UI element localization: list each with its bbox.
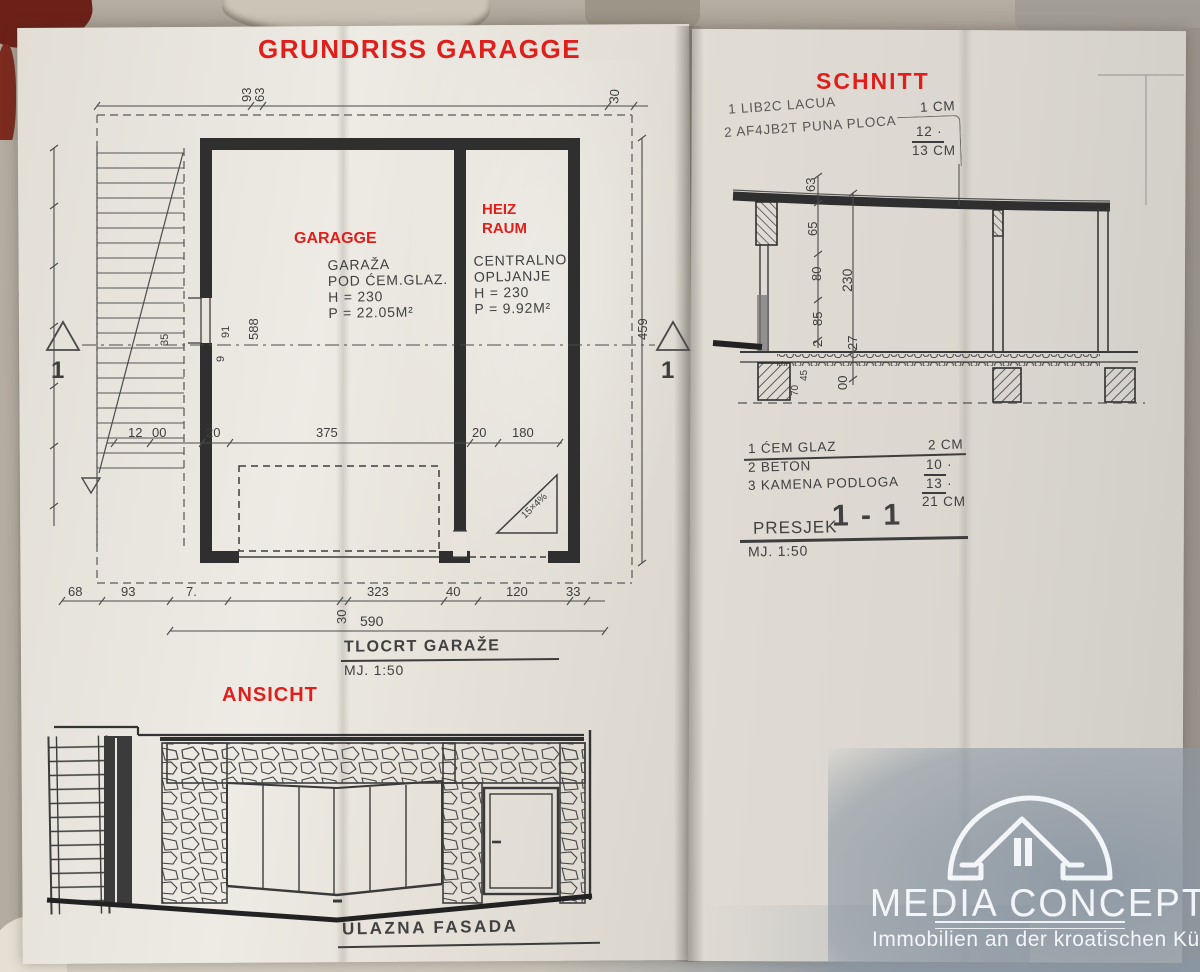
garage-room-finish: POD ĆEM.GLAZ.	[328, 271, 448, 289]
material-note-value-4: 21 CM	[922, 494, 966, 509]
dim-top-30: 30	[606, 89, 622, 105]
dim-left-588: 588	[246, 318, 261, 340]
dim-mid-12: 12	[128, 425, 142, 440]
plan-ramp-triangle: 15×4%	[497, 475, 557, 533]
dim-bot-93: 93	[121, 584, 135, 599]
plan-walls	[200, 138, 580, 563]
dim-mid-375: 375	[316, 425, 338, 440]
section-sheet-frame-corner	[897, 115, 962, 168]
plan-openings	[239, 466, 548, 557]
elevation-entry-door	[484, 788, 558, 894]
garage-room-label: GARAŽA POD ĆEM.GLAZ. H = 230 P = 22.05M²	[327, 255, 448, 321]
sdim-00: 00	[835, 376, 850, 390]
dim-bot-7: 7.	[186, 584, 197, 599]
sdim-65: 65	[805, 222, 820, 236]
section-caption-title: PRESJEK	[753, 517, 838, 538]
section-note-top-value-1: 1 CM	[920, 98, 956, 115]
sdim-45: 45	[799, 369, 810, 381]
material-note-1: 1 ĆEM GLAZ	[748, 439, 837, 456]
brand-tagline: Immobilien an der kroatischen Küste	[872, 928, 1184, 952]
section-marker-left: 1	[51, 357, 64, 384]
elevation-drawing	[47, 727, 592, 920]
sdim-70: 70	[790, 384, 801, 396]
section-foundations	[758, 363, 1135, 402]
sdim-85: 85	[810, 312, 825, 326]
sdim-230: 230	[839, 268, 855, 292]
heating-room-name-2: OPLJANJE	[474, 267, 568, 285]
garage-room-area: P = 22.05M²	[328, 303, 448, 321]
elevation-garage-door	[227, 781, 442, 901]
plan-window	[188, 298, 212, 343]
dim-left-9: 9	[215, 356, 227, 362]
dim-total-590: 590	[360, 613, 384, 629]
plan-caption-title: TLOCRT GARAŽE	[344, 637, 501, 656]
sdim-80: 80	[809, 267, 824, 281]
dim-bot-68: 68	[68, 584, 82, 599]
section-caption-number: 1 - 1	[832, 498, 903, 533]
material-note-value-3: 13 ·	[926, 476, 952, 491]
heating-room-height: H = 230	[474, 283, 568, 301]
elevation-stonework	[162, 743, 585, 903]
dim-mid-20b: 20	[472, 425, 486, 440]
garage-overlay-label: GARAGGE	[294, 230, 377, 248]
section-sheet-frame-edge	[958, 164, 960, 206]
elevation-title: ANSICHT	[222, 684, 318, 707]
heating-room-area: P = 9.92M²	[474, 299, 568, 317]
plan-interior-door	[453, 531, 467, 557]
dim-bot-33: 33	[566, 584, 580, 599]
heiz-overlay-label-2: RAUM	[482, 220, 527, 237]
plan-and-elevation-drawing: 15×4% 1 1 12 00 20	[20, 26, 692, 962]
dim-mid-00: 00	[152, 425, 166, 440]
dim-left-35: 35	[159, 334, 171, 346]
section-sheet-lines	[1098, 75, 1184, 205]
dim-top-63: 63	[252, 88, 267, 102]
elevation-trellis	[48, 736, 109, 915]
section-marker-right: 1	[661, 357, 674, 384]
sdim-27: 27	[845, 336, 860, 350]
sdim-2: 2	[810, 340, 825, 347]
section-title: SCHNITT	[816, 68, 930, 95]
sdim-63: 63	[803, 178, 818, 192]
dim-bot-40: 40	[446, 584, 460, 599]
dim-bot-30: 30	[334, 610, 349, 624]
dim-bot-323: 323	[367, 584, 389, 599]
dim-bot-120: 120	[506, 584, 528, 599]
border-left-strip	[0, 140, 18, 972]
section-caption-scale: MJ. 1:50	[748, 542, 808, 559]
plan-stair-strip	[82, 148, 184, 551]
material-note-2: 2 BETON	[748, 458, 811, 475]
material-note-value-2: 10 ·	[926, 457, 952, 472]
brand-house-icon	[945, 793, 1125, 888]
brand-name: MEDIA CONCEPT	[870, 880, 1188, 925]
heating-room-label: CENTRALNO OPLJANJE H = 230 P = 9.92M²	[473, 251, 568, 317]
border-left-maroon-streak	[0, 44, 16, 149]
heiz-overlay-label-1: HEIZ	[482, 201, 516, 218]
dim-mid-180: 180	[512, 425, 534, 440]
dim-left-91: 91	[220, 326, 232, 338]
plan-caption-scale: MJ. 1:50	[344, 662, 404, 678]
elevation-dark-edge	[104, 736, 132, 906]
dim-right-459: 459	[635, 318, 650, 340]
scanned-plan-document: 15×4% 1 1 12 00 20	[0, 0, 1200, 972]
dim-mid-20a: 20	[206, 425, 220, 440]
plan-title: GRUNDRISS GARAGGE	[258, 34, 581, 65]
material-note-value-1: 2 CM	[928, 437, 964, 453]
elevation-caption: ULAZNA FASADA	[342, 916, 519, 939]
heating-room-name-1: CENTRALNO	[473, 251, 567, 269]
